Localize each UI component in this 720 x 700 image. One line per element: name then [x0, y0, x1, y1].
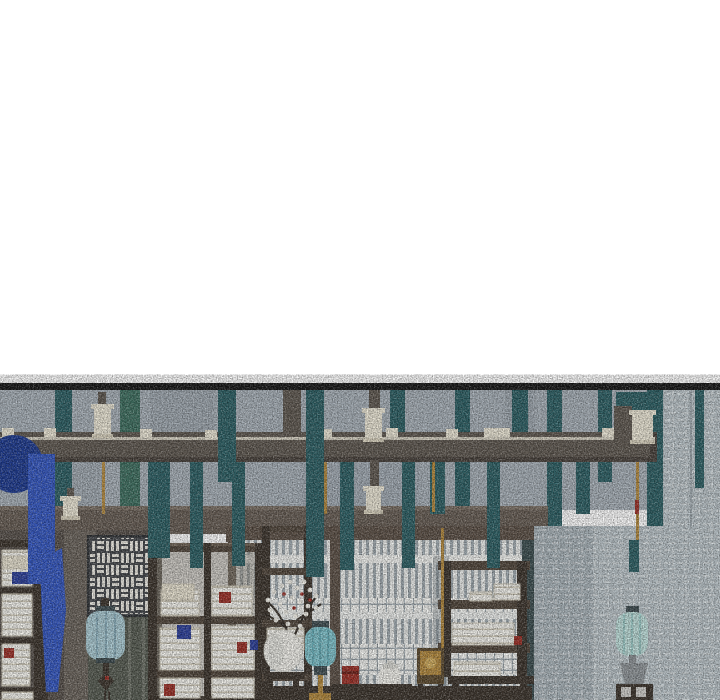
comic-panel	[0, 0, 720, 700]
panel-divider-line	[0, 383, 720, 391]
blank-top-area	[0, 0, 720, 383]
illustration-canvas	[0, 0, 720, 700]
grain-overlay	[0, 390, 720, 700]
